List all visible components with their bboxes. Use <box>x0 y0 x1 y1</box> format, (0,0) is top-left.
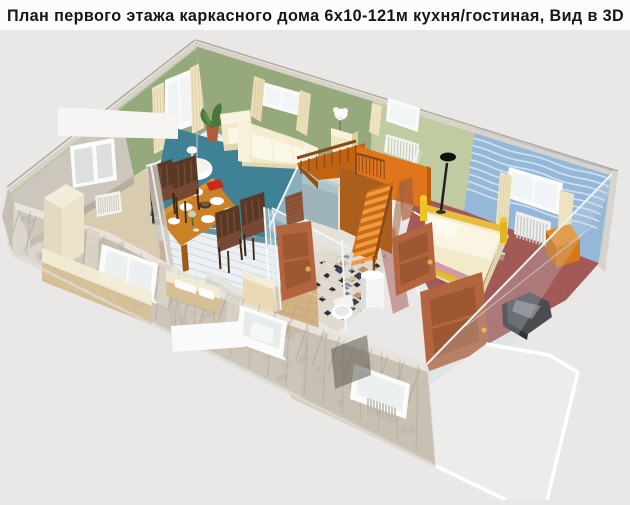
svg-text:План первого этажа каркасного: План первого этажа каркасного дома 6х10-… <box>7 7 624 25</box>
